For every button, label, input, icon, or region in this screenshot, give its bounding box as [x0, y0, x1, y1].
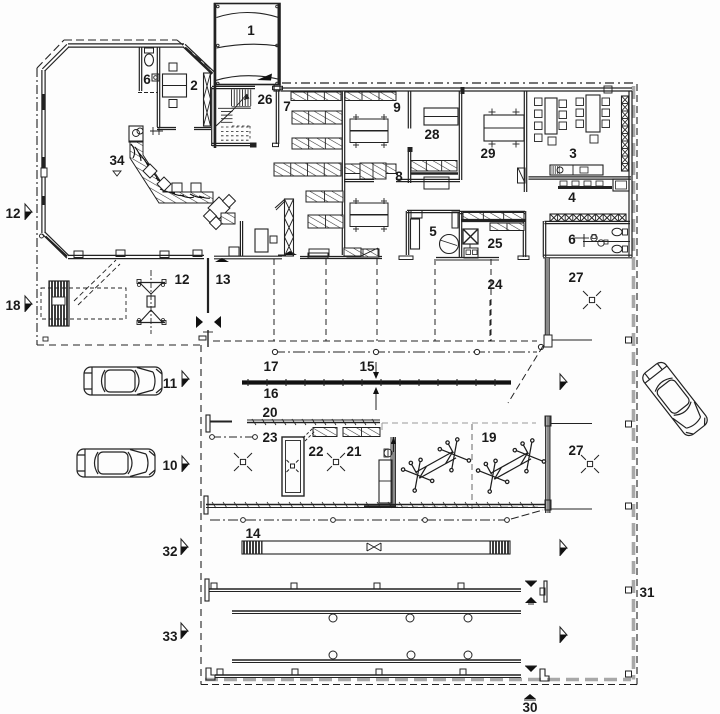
svg-text:14: 14: [245, 526, 261, 541]
svg-text:32: 32: [162, 544, 177, 559]
svg-text:34: 34: [109, 153, 125, 168]
svg-text:33: 33: [162, 629, 178, 644]
svg-text:5: 5: [429, 224, 437, 239]
svg-text:1: 1: [247, 23, 255, 38]
svg-text:16: 16: [263, 386, 279, 401]
svg-text:9: 9: [393, 100, 401, 115]
svg-text:28: 28: [424, 127, 440, 142]
svg-text:23: 23: [262, 430, 278, 445]
svg-text:29: 29: [480, 146, 495, 161]
svg-text:15: 15: [359, 359, 375, 374]
svg-text:20: 20: [262, 405, 277, 420]
svg-text:6: 6: [568, 232, 576, 247]
svg-text:7: 7: [283, 99, 291, 114]
svg-text:6: 6: [143, 72, 151, 87]
svg-text:19: 19: [481, 430, 496, 445]
svg-text:22: 22: [308, 444, 323, 459]
svg-text:12: 12: [174, 272, 189, 287]
svg-text:18: 18: [5, 298, 21, 313]
svg-text:30: 30: [522, 700, 537, 714]
svg-text:27: 27: [568, 270, 583, 285]
svg-text:11: 11: [163, 376, 178, 391]
svg-text:10: 10: [162, 458, 177, 473]
svg-text:25: 25: [487, 236, 503, 251]
svg-text:3: 3: [569, 146, 577, 161]
svg-text:8: 8: [395, 169, 403, 184]
svg-text:31: 31: [639, 585, 655, 600]
svg-text:12: 12: [5, 206, 20, 221]
svg-text:13: 13: [215, 272, 231, 287]
svg-text:27: 27: [568, 443, 583, 458]
svg-text:17: 17: [263, 359, 278, 374]
svg-text:26: 26: [257, 92, 273, 107]
svg-text:24: 24: [487, 277, 503, 292]
svg-text:21: 21: [346, 444, 362, 459]
svg-text:4: 4: [568, 190, 576, 205]
svg-text:2: 2: [190, 78, 198, 93]
